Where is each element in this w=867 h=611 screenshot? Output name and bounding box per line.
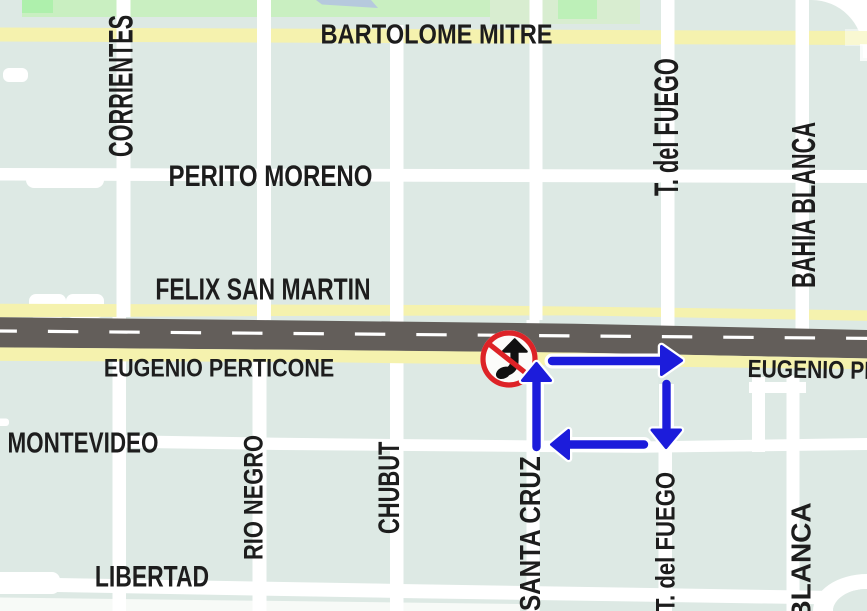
svg-text:BAHIA BLANCA: BAHIA BLANCA: [785, 122, 822, 288]
svg-text:LIBERTAD: LIBERTAD: [95, 560, 209, 594]
svg-text:EUGENIO PERTICONE: EUGENIO PERTICONE: [747, 354, 867, 386]
svg-text:PERITO MORENO: PERITO MORENO: [168, 158, 372, 192]
svg-text:T. del FUEGO: T. del FUEGO: [648, 58, 686, 196]
svg-text:BARTOLOME MITRE: BARTOLOME MITRE: [320, 20, 552, 50]
svg-text:SANTA CRUZ: SANTA CRUZ: [514, 456, 547, 611]
svg-text:BAHIA BLANCA: BAHIA BLANCA: [786, 502, 817, 611]
svg-text:RIO NEGRO: RIO NEGRO: [239, 435, 269, 560]
svg-text:FELIX SAN MARTIN: FELIX SAN MARTIN: [155, 271, 370, 306]
svg-text:T. del FUEGO: T. del FUEGO: [652, 472, 682, 611]
svg-text:CORRIENTES: CORRIENTES: [103, 15, 141, 157]
svg-text:CHUBUT: CHUBUT: [372, 442, 406, 534]
svg-text:EUGENIO PERTICONE: EUGENIO PERTICONE: [104, 354, 334, 382]
svg-text:MONTEVIDEO: MONTEVIDEO: [7, 428, 158, 459]
